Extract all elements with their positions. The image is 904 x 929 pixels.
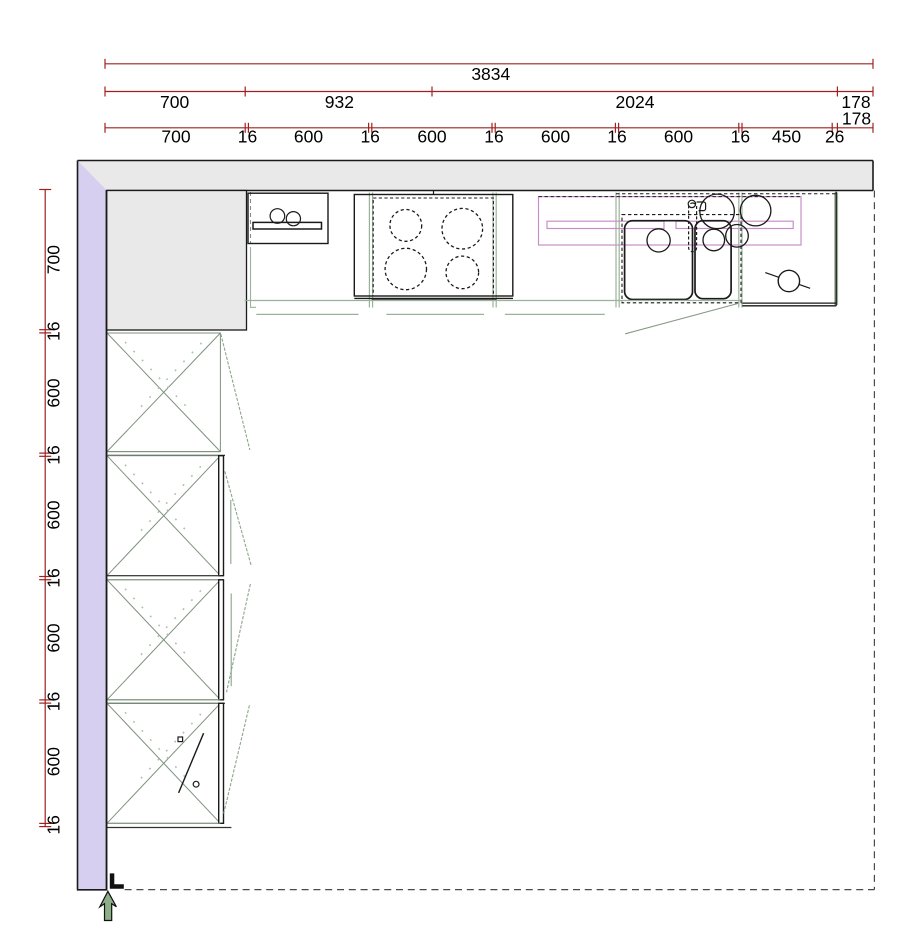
svg-text:16: 16 <box>484 127 503 147</box>
svg-text:600: 600 <box>417 127 446 147</box>
svg-text:16: 16 <box>360 127 379 147</box>
svg-text:450: 450 <box>772 127 801 147</box>
svg-text:16: 16 <box>44 692 64 711</box>
svg-text:16: 16 <box>731 127 750 147</box>
svg-text:700: 700 <box>44 245 64 274</box>
svg-text:932: 932 <box>325 92 354 112</box>
svg-text:600: 600 <box>44 623 64 652</box>
svg-text:600: 600 <box>44 500 64 529</box>
svg-text:16: 16 <box>44 445 64 464</box>
svg-text:700: 700 <box>160 92 189 112</box>
svg-text:600: 600 <box>44 378 64 407</box>
svg-text:600: 600 <box>294 127 323 147</box>
svg-text:26: 26 <box>825 127 844 147</box>
svg-text:600: 600 <box>664 127 693 147</box>
svg-text:16: 16 <box>44 322 64 341</box>
svg-text:600: 600 <box>44 747 64 776</box>
svg-text:2024: 2024 <box>616 92 655 112</box>
svg-text:16: 16 <box>238 127 257 147</box>
svg-text:16: 16 <box>44 815 64 834</box>
svg-text:700: 700 <box>161 127 190 147</box>
svg-text:178: 178 <box>842 108 871 128</box>
svg-text:16: 16 <box>44 568 64 587</box>
svg-text:3834: 3834 <box>471 64 510 84</box>
svg-text:16: 16 <box>607 127 626 147</box>
svg-text:600: 600 <box>541 127 570 147</box>
